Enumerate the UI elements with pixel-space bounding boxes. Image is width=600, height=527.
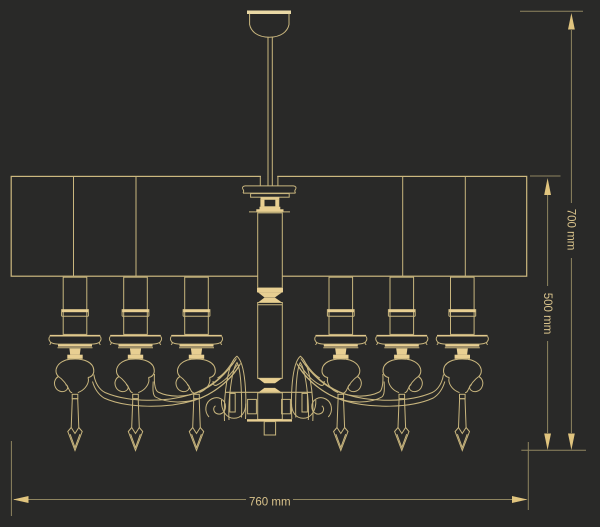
- svg-text:500 mm: 500 mm: [541, 293, 553, 335]
- svg-text:700 mm: 700 mm: [565, 209, 577, 251]
- svg-text:760 mm: 760 mm: [249, 497, 291, 509]
